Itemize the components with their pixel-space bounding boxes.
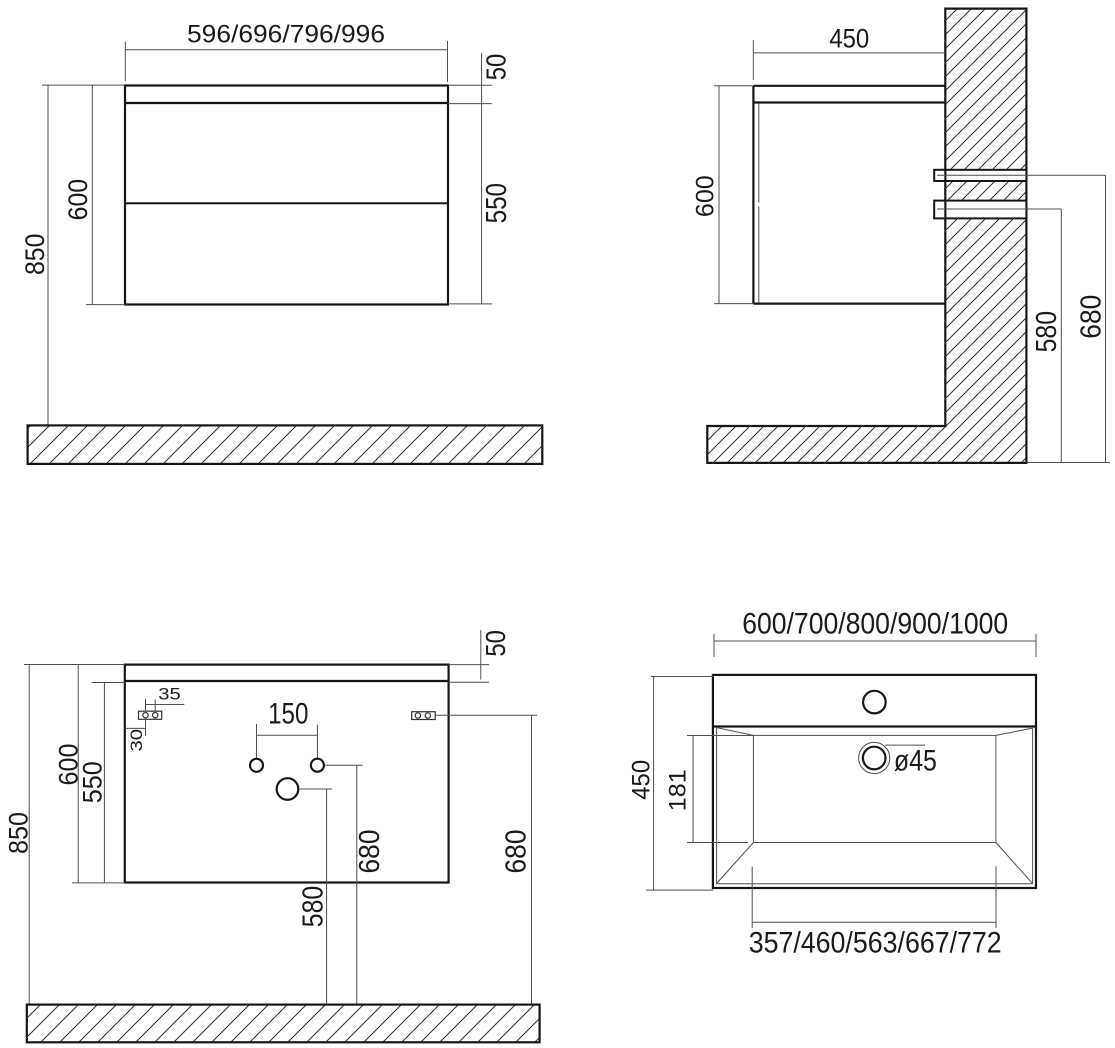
svg-text:357/460/563/667/772: 357/460/563/667/772 — [749, 926, 1002, 959]
svg-text:181: 181 — [664, 769, 691, 811]
svg-text:600/700/800/900/1000: 600/700/800/900/1000 — [742, 608, 1008, 641]
svg-text:ø45: ø45 — [894, 744, 937, 777]
svg-text:596/696/796/996: 596/696/796/996 — [187, 21, 385, 49]
svg-text:580: 580 — [1031, 311, 1063, 352]
svg-text:450: 450 — [829, 24, 869, 54]
svg-text:150: 150 — [268, 698, 308, 731]
svg-text:450: 450 — [628, 760, 656, 800]
svg-text:30: 30 — [128, 729, 146, 752]
svg-text:600: 600 — [692, 175, 720, 217]
svg-text:850: 850 — [4, 812, 34, 854]
svg-text:680: 680 — [501, 830, 533, 874]
svg-text:550: 550 — [77, 761, 107, 803]
svg-text:550: 550 — [481, 183, 513, 223]
svg-text:35: 35 — [158, 685, 181, 703]
svg-text:580: 580 — [298, 886, 330, 927]
svg-text:600: 600 — [63, 179, 93, 221]
svg-text:680: 680 — [354, 830, 386, 874]
svg-text:50: 50 — [480, 54, 511, 81]
svg-text:680: 680 — [1075, 295, 1107, 339]
svg-text:50: 50 — [480, 630, 511, 657]
svg-text:850: 850 — [20, 234, 50, 275]
